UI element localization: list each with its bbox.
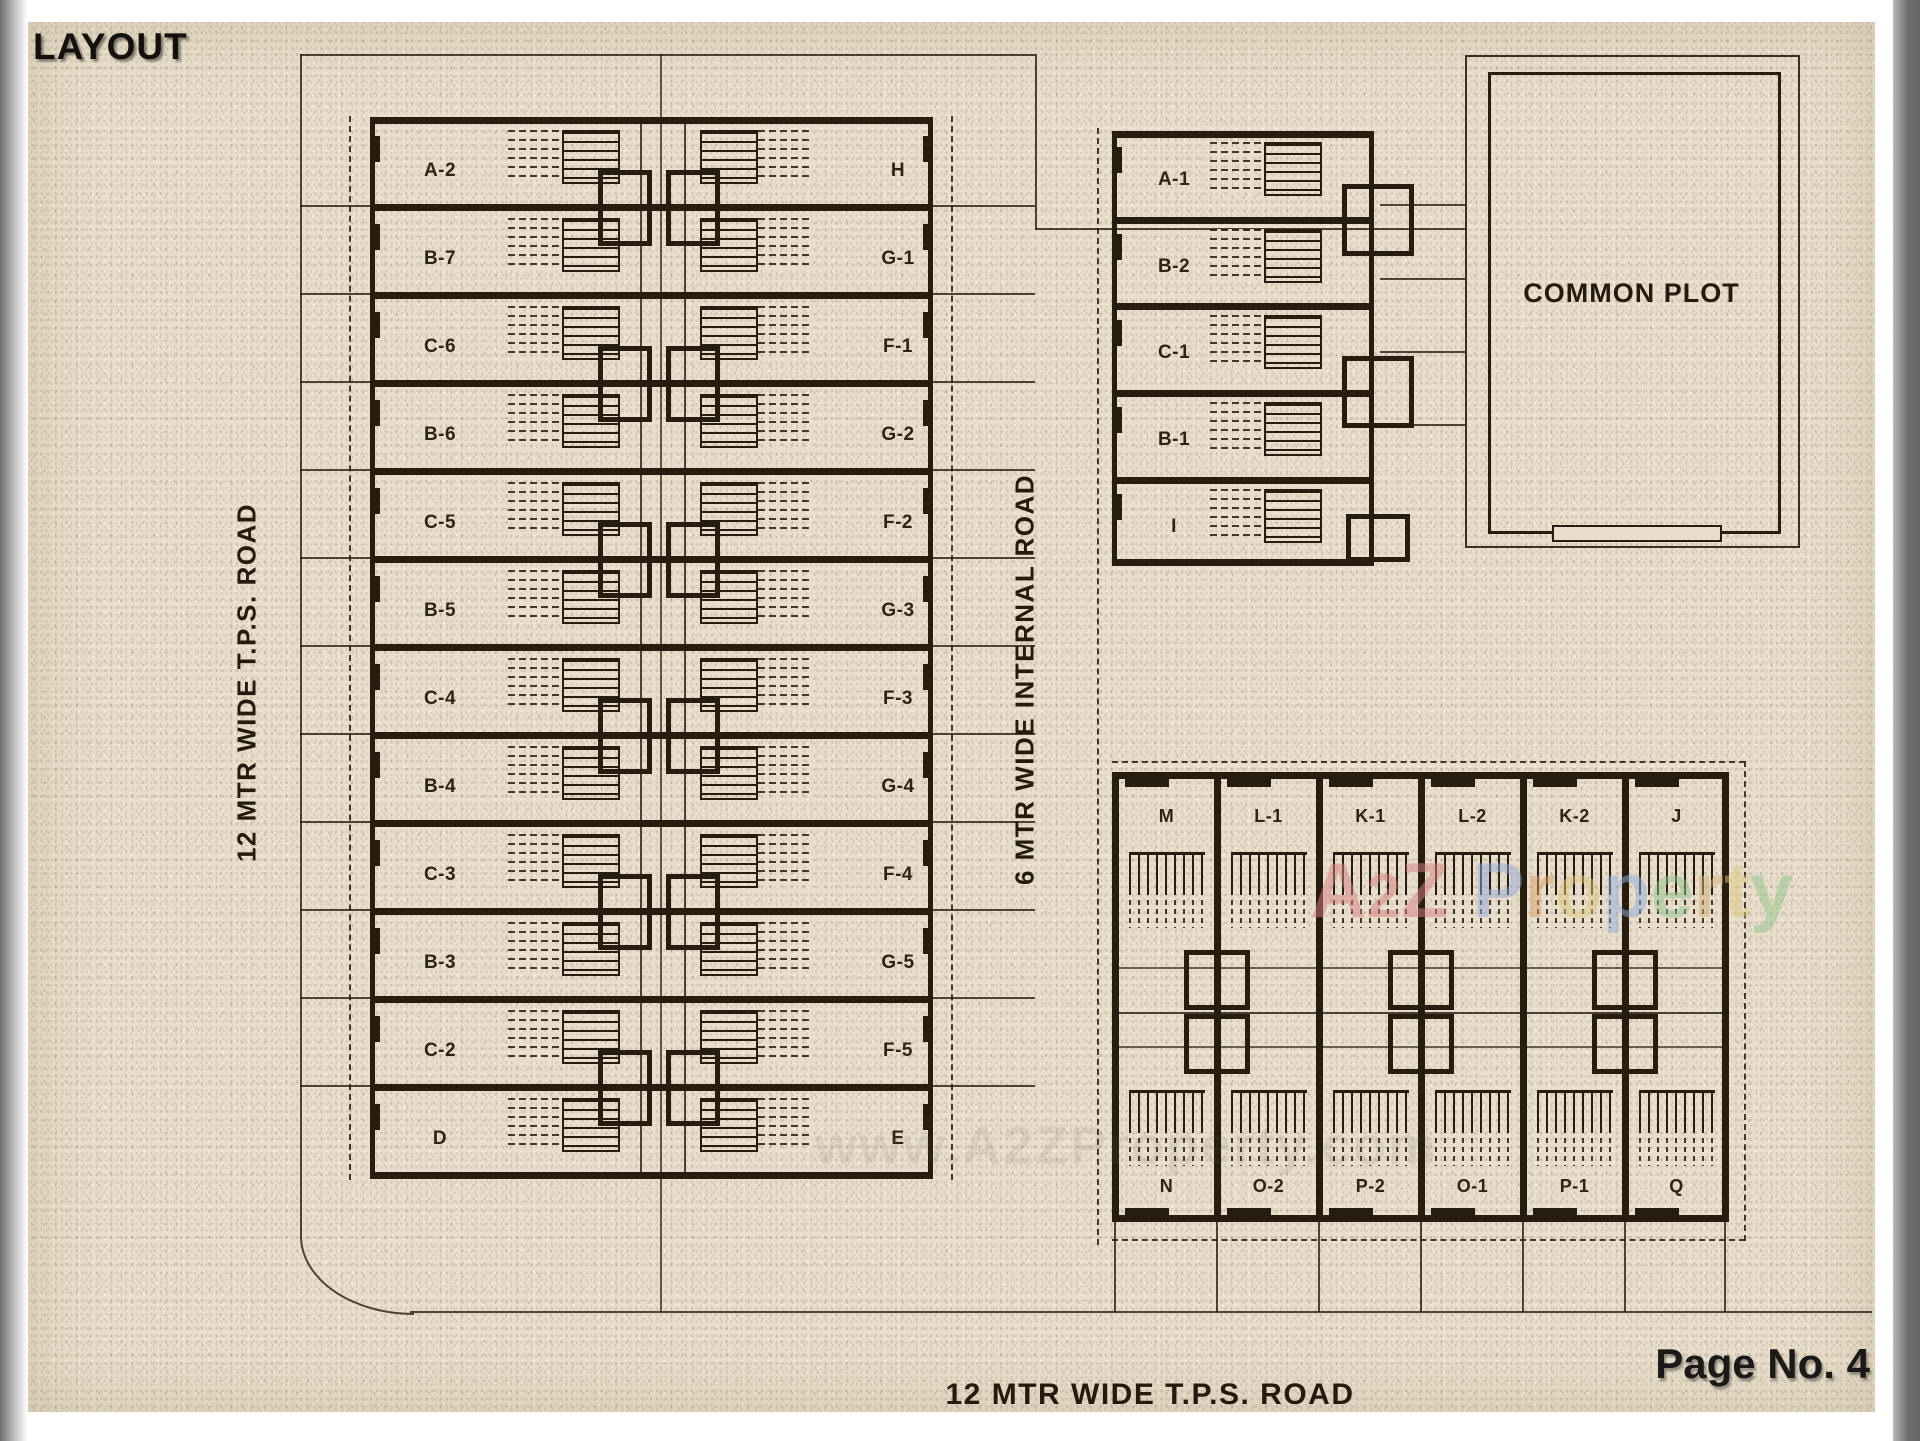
unit-label: F-1	[843, 336, 953, 358]
unit-column: J Q	[1629, 772, 1724, 1224]
extension-line	[1522, 1222, 1524, 1312]
door-jamb	[923, 400, 928, 426]
dash-boundary	[1744, 761, 1746, 1241]
unit-column: K-2 P-1	[1527, 772, 1622, 1224]
unit-label: F-4	[843, 864, 953, 886]
door-jamb	[923, 136, 928, 162]
staircase-icon	[700, 658, 812, 712]
unit-column: L-2 O-1	[1425, 772, 1520, 1224]
staircase-icon	[508, 834, 620, 888]
unit-label: C-3	[385, 864, 495, 886]
url-watermark: www.A2ZProperty.com	[815, 1115, 1438, 1177]
staircase-icon	[508, 570, 620, 624]
unit-label: K-2	[1527, 806, 1622, 827]
unit-row: C-4 F-3	[0, 648, 1920, 736]
extension-line	[1114, 1222, 1116, 1312]
staircase-icon	[1435, 1090, 1511, 1166]
door-jamb	[375, 1016, 380, 1042]
unit-label: B-4	[385, 776, 495, 798]
door-segment	[1125, 779, 1169, 787]
unit-label: A-1	[1126, 169, 1222, 191]
door-segment	[1227, 779, 1271, 787]
staircase-icon	[1639, 1090, 1715, 1166]
unit-row: C-1	[1112, 306, 1374, 393]
unit-label: B-5	[385, 600, 495, 622]
staircase-icon	[1537, 1090, 1613, 1166]
dash-boundary	[1112, 1239, 1745, 1241]
staircase-icon	[508, 394, 620, 448]
watermark-letter: y	[1750, 845, 1793, 936]
watermark-letter: t	[1724, 845, 1750, 936]
door-jamb	[375, 312, 380, 338]
door-segment	[1533, 1208, 1577, 1216]
unit-row: B-1	[1112, 393, 1374, 480]
door-jamb	[375, 488, 380, 514]
door-jamb	[375, 752, 380, 778]
watermark-letter: p	[1603, 845, 1651, 936]
unit-label: H	[843, 160, 953, 182]
door-jamb	[1117, 320, 1122, 346]
dash-boundary	[1112, 761, 1745, 763]
door-jamb	[923, 752, 928, 778]
watermark-letter: 2	[1366, 861, 1400, 932]
staircase-icon	[508, 922, 620, 976]
watermark-letter: r	[1525, 845, 1555, 936]
road-label-west: 12 MTR WIDE T.P.S. ROAD	[232, 483, 263, 883]
extension-line	[1216, 1222, 1218, 1312]
staircase-icon	[700, 746, 812, 800]
unit-row: B-5 G-3	[0, 560, 1920, 648]
extension-line	[1724, 1222, 1726, 1312]
page-number: Page No. 4	[1600, 1340, 1870, 1388]
door-jamb	[923, 840, 928, 866]
unit-label: B-6	[385, 424, 495, 446]
unit-row: B-2	[1112, 220, 1374, 307]
staircase-icon	[700, 394, 812, 448]
unit-label: L-1	[1221, 806, 1316, 827]
door-jamb	[375, 928, 380, 954]
unit-label: B-7	[385, 248, 495, 270]
watermark-letter: P	[1472, 845, 1524, 936]
staircase-icon	[508, 306, 620, 360]
staircase-icon	[508, 130, 620, 184]
common-plot-gate	[1552, 525, 1722, 542]
staircase-icon	[1210, 315, 1322, 369]
staircase-icon	[1210, 402, 1322, 456]
unit-label: O-1	[1425, 1176, 1520, 1197]
staircase-icon	[1129, 852, 1205, 928]
watermark-letter: o	[1555, 845, 1603, 936]
staircase-icon	[508, 1010, 620, 1064]
layout-plan-screenshot: LAYOUT	[0, 0, 1920, 1441]
unit-label: K-1	[1323, 806, 1418, 827]
extension-line	[1420, 1222, 1422, 1312]
staircase-icon	[508, 218, 620, 272]
door-jamb	[1117, 494, 1122, 520]
door-jamb	[1117, 147, 1122, 173]
unit-row: A-1	[1112, 133, 1374, 220]
watermark-letter: e	[1650, 845, 1693, 936]
door-jamb	[923, 1016, 928, 1042]
unit-label: F-2	[843, 512, 953, 534]
unit-label: G-1	[843, 248, 953, 270]
unit-label: A-2	[385, 160, 495, 182]
staircase-icon	[700, 1010, 812, 1064]
staircase-icon	[508, 658, 620, 712]
unit-label: I	[1126, 516, 1222, 538]
unit-label: C-4	[385, 688, 495, 710]
staircase-icon	[508, 482, 620, 536]
unit-label: L-2	[1425, 806, 1520, 827]
road-label-south: 12 MTR WIDE T.P.S. ROAD	[920, 1378, 1380, 1412]
door-jamb	[375, 840, 380, 866]
door-jamb	[1117, 407, 1122, 433]
staircase-icon	[700, 570, 812, 624]
staircase-icon	[1210, 489, 1322, 543]
watermark-letter: Z	[1401, 845, 1449, 936]
door-segment	[1635, 779, 1679, 787]
unit-label: B-2	[1126, 256, 1222, 278]
unit-label: P-1	[1527, 1176, 1622, 1197]
door-segment	[1329, 1208, 1373, 1216]
staircase-icon	[700, 306, 812, 360]
door-jamb	[923, 488, 928, 514]
staircase-icon	[1231, 852, 1307, 928]
staircase-icon	[508, 746, 620, 800]
staircase-icon	[700, 218, 812, 272]
common-plot-label: COMMON PLOT	[1488, 278, 1775, 309]
watermark-letter: r	[1694, 845, 1724, 936]
south-boundary-line	[410, 1311, 1872, 1313]
unit-label: C-6	[385, 336, 495, 358]
north-boundary-line	[300, 54, 1035, 56]
unit-label: G-4	[843, 776, 953, 798]
extension-line	[1624, 1222, 1626, 1312]
door-segment	[1533, 779, 1577, 787]
door-jamb	[923, 664, 928, 690]
door-jamb	[923, 312, 928, 338]
door-jamb	[923, 928, 928, 954]
door-segment	[1227, 1208, 1271, 1216]
door-jamb	[375, 224, 380, 250]
unit-label: P-2	[1323, 1176, 1418, 1197]
unit-label: C-5	[385, 512, 495, 534]
wall	[1520, 772, 1527, 1222]
unit-label: M	[1119, 806, 1214, 827]
staircase-icon	[700, 834, 812, 888]
door-jamb	[375, 664, 380, 690]
door-jamb	[375, 400, 380, 426]
unit-label: F-5	[843, 1040, 953, 1062]
unit-label: Q	[1629, 1176, 1724, 1197]
watermark-letter: A	[1310, 845, 1366, 936]
door-jamb	[375, 576, 380, 602]
door-segment	[1125, 1208, 1169, 1216]
unit-label: N	[1119, 1176, 1214, 1197]
staircase-icon	[700, 482, 812, 536]
unit-label: G-3	[843, 600, 953, 622]
unit-label: B-1	[1126, 429, 1222, 451]
door-jamb	[923, 224, 928, 250]
unit-label: C-1	[1126, 342, 1222, 364]
door-jamb	[375, 1104, 380, 1130]
staircase-icon	[700, 922, 812, 976]
unit-label: F-3	[843, 688, 953, 710]
staircase-icon	[1210, 229, 1322, 283]
unit-label: G-2	[843, 424, 953, 446]
unit-label: O-2	[1221, 1176, 1316, 1197]
unit-label: D	[385, 1128, 495, 1150]
unit-row: I	[1112, 480, 1374, 567]
door-segment	[1431, 779, 1475, 787]
unit-label: B-3	[385, 952, 495, 974]
door-jamb	[923, 576, 928, 602]
door-segment	[1329, 779, 1373, 787]
unit-label: G-5	[843, 952, 953, 974]
road-label-internal: 6 MTR WIDE INTERNAL ROAD	[1010, 418, 1041, 942]
door-jamb	[375, 136, 380, 162]
staircase-icon	[700, 1098, 812, 1152]
extension-line	[1318, 1222, 1320, 1312]
page-title: LAYOUT	[33, 26, 188, 68]
staircase-icon	[1210, 142, 1322, 196]
staircase-icon	[508, 1098, 620, 1152]
brand-watermark: A2ZProperty	[1310, 845, 1793, 936]
unit-label: C-2	[385, 1040, 495, 1062]
staircase-icon	[700, 130, 812, 184]
door-segment	[1635, 1208, 1679, 1216]
unit-label: J	[1629, 806, 1724, 827]
door-jamb	[1117, 234, 1122, 260]
door-segment	[1431, 1208, 1475, 1216]
dash-boundary	[1097, 128, 1099, 1245]
